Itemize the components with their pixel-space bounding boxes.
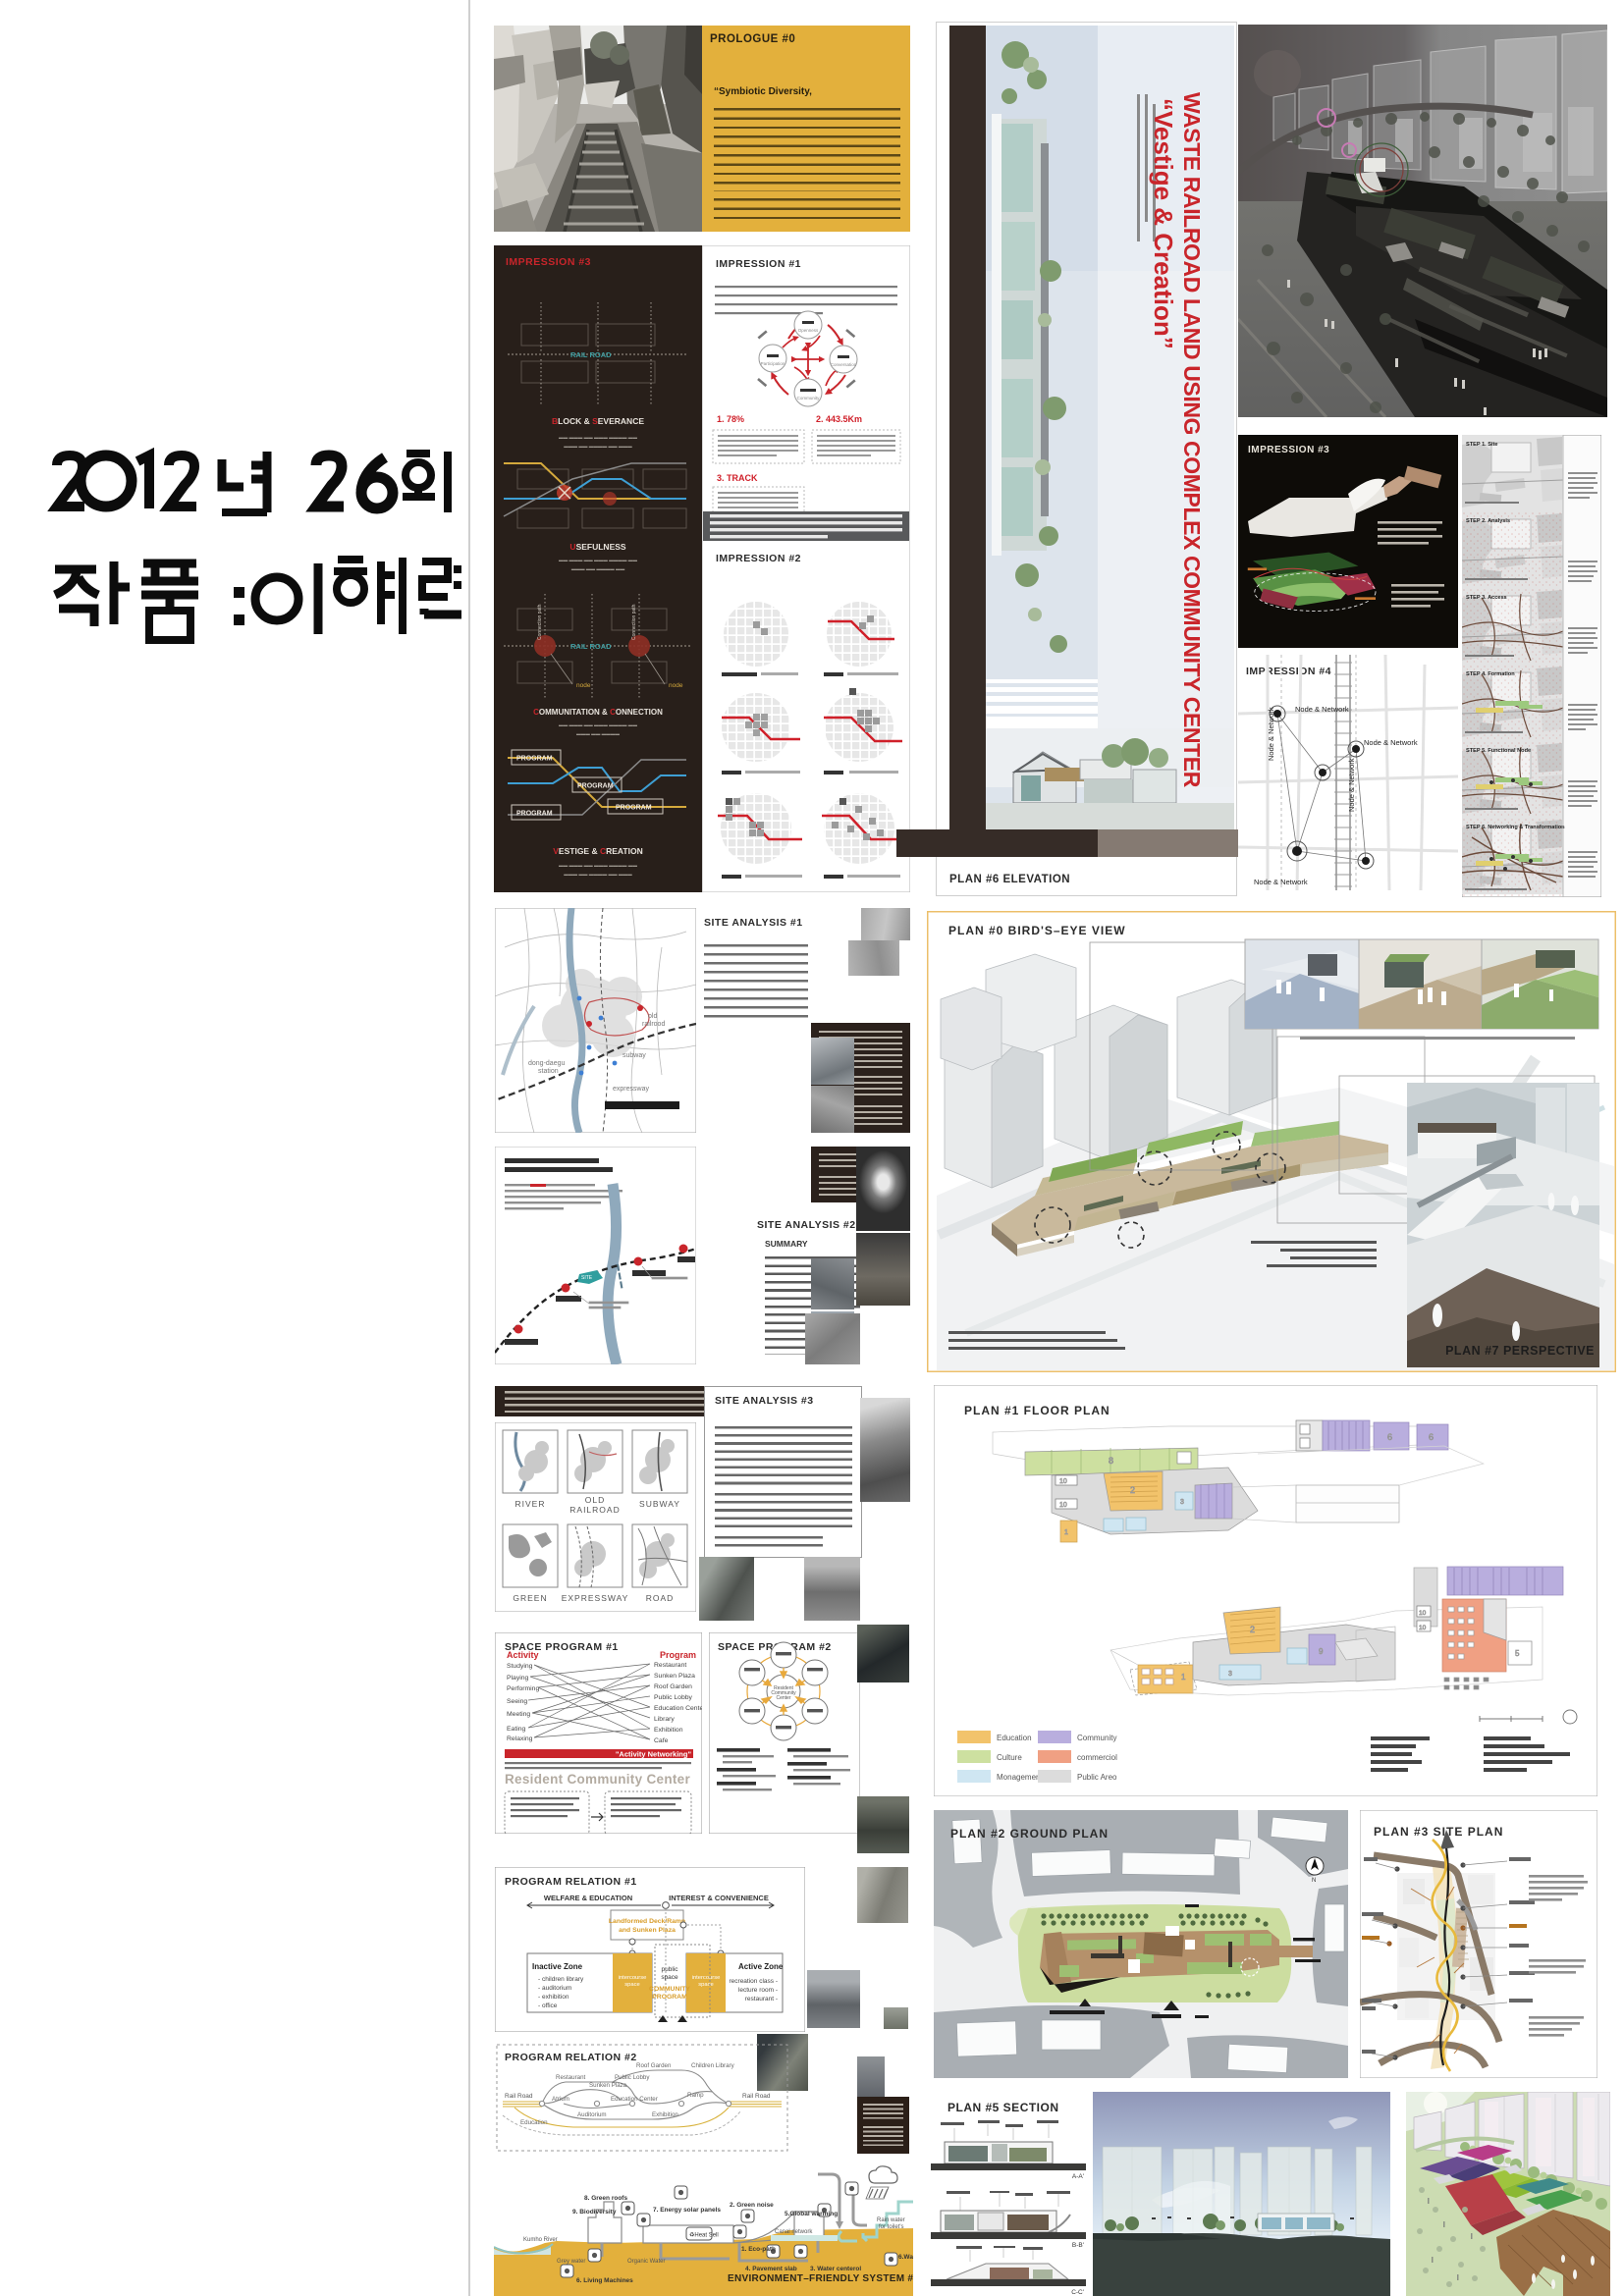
svg-text:space: space [698,1982,713,1988]
svg-text:6: 6 [1387,1432,1392,1442]
svg-text:old: old [648,1013,657,1020]
svg-text:expressway: expressway [613,1086,649,1093]
svg-text:9. Biodiversity: 9. Biodiversity [572,2209,617,2216]
svg-text:PROGRAM: PROGRAM [616,805,652,812]
svg-text:2: 2 [1130,1485,1135,1495]
svg-text:recreation class -: recreation class - [730,1978,779,1985]
svg-text:6: 6 [1429,1432,1434,1442]
svg-text:- auditorium: - auditorium [538,1985,571,1992]
svg-text:Education: Education [997,1734,1032,1742]
svg-text:PLAN #1 FLOOR PLAN: PLAN #1 FLOOR PLAN [964,1404,1110,1417]
svg-text:intercourse: intercourse [692,1975,721,1981]
svg-text:Playing: Playing [507,1675,529,1682]
svg-text:railrood: railrood [642,1021,665,1028]
svg-text:Activity: Activity [507,1650,539,1660]
svg-text:commerciol: commerciol [1077,1753,1117,1762]
svg-text:Connection path: Connection path [631,604,637,640]
svg-text:IMPRESSION #4: IMPRESSION #4 [1246,666,1331,677]
svg-text:Landformed Deck/Ramp: Landformed Deck/Ramp [609,1918,685,1925]
svg-text:1: 1 [1181,1673,1186,1682]
svg-text:PROGRAM RELATION #2: PROGRAM RELATION #2 [505,2052,637,2063]
svg-text:3. TRACK: 3. TRACK [717,473,758,483]
svg-text:RAIL ROAD: RAIL ROAD [570,642,612,651]
svg-text:OLD: OLD [585,1495,605,1505]
svg-text:10: 10 [1419,1625,1427,1631]
svg-text:7. Energy solar panels: 7. Energy solar panels [653,2207,721,2214]
svg-text:Node & Network: Node & Network [1347,758,1356,812]
svg-text:STEP 3. Access: STEP 3. Access [1466,595,1507,601]
svg-text:Studying: Studying [507,1663,533,1670]
svg-text:Restaurant: Restaurant [556,2074,586,2081]
svg-text:dong-daegu: dong-daegu [528,1060,565,1067]
svg-text:▬▬▬ ▬▬ ▬▬▬▬ ▬▬: ▬▬▬ ▬▬ ▬▬▬▬ ▬▬ [571,566,625,571]
svg-text:Rain water: Rain water [877,2217,905,2223]
svg-text:WELFARE & EDUCATION: WELFARE & EDUCATION [544,1894,632,1902]
svg-text:4. Pavement slab: 4. Pavement slab [745,2266,797,2272]
svg-text:Connection path: Connection path [537,604,543,640]
svg-text:Community: Community [1077,1734,1116,1742]
svg-text:PLAN #0 BIRD'S–EYE VIEW: PLAN #0 BIRD'S–EYE VIEW [948,924,1126,937]
svg-text:1. Eco-path: 1. Eco-path [741,2246,776,2253]
svg-text:restaurant -: restaurant - [745,1996,778,2002]
svg-text:"Activity Networking": "Activity Networking" [616,1750,692,1759]
svg-text:SITE: SITE [581,1275,593,1281]
svg-text:6.Water: 6.Water [898,2254,913,2261]
svg-text:▬▬▬ ▬▬ ▬▬▬▬ ▬▬ ▬▬▬: ▬▬▬ ▬▬ ▬▬▬▬ ▬▬ ▬▬▬ [564,444,632,449]
svg-text:Monagement: Monagement [997,1773,1043,1782]
svg-text:and Sunken Plaza: and Sunken Plaza [619,1927,676,1934]
svg-text:Cafe: Cafe [654,1737,669,1744]
svg-text:♻Heat Sell: ♻Heat Sell [689,2232,719,2239]
svg-text:Sunken Plaza: Sunken Plaza [654,1673,695,1680]
svg-text:1: 1 [1064,1529,1068,1536]
svg-text:▬▬ ▬▬▬ ▬▬ ▬▬▬ ▬▬▬▬ ▬▬: ▬▬ ▬▬▬ ▬▬ ▬▬▬ ▬▬▬▬ ▬▬ [559,558,637,562]
svg-text:node: node [576,682,591,689]
svg-text:Organic Water: Organic Water [627,2259,665,2265]
svg-text:N: N [1312,1878,1316,1884]
svg-text:IMPRESSION #2: IMPRESSION #2 [716,553,801,564]
svg-text:Node & Network: Node & Network [1267,707,1275,761]
svg-text:GREEN: GREEN [513,1593,547,1603]
svg-text:2. Green noise: 2. Green noise [730,2202,774,2209]
svg-text:public: public [662,1966,679,1973]
svg-text:PLAN #2 GROUND PLAN: PLAN #2 GROUND PLAN [950,1827,1109,1841]
svg-text:3: 3 [1228,1671,1232,1678]
svg-text:5: 5 [1515,1649,1520,1658]
svg-text:RAILROAD: RAILROAD [569,1505,620,1515]
svg-text:5.Global warming: 5.Global warming [785,2211,838,2217]
svg-text:▬▬▬ ▬▬ ▬▬▬▬: ▬▬▬ ▬▬ ▬▬▬▬ [576,731,620,736]
svg-text:6. Living Machines: 6. Living Machines [576,2277,633,2284]
svg-text:STEP 1. Site: STEP 1. Site [1466,442,1498,448]
svg-text:Canal network: Canal network [775,2229,813,2235]
svg-text:BLOCK & SEVERANCE: BLOCK & SEVERANCE [552,416,644,426]
svg-text:8: 8 [1109,1456,1113,1466]
svg-text:Center: Center [776,1695,790,1701]
svg-text:Openness: Openness [798,328,819,333]
svg-text:Performing: Performing [507,1685,539,1692]
svg-text:Auditorium: Auditorium [577,2111,607,2118]
svg-text:Education: Education [520,2119,548,2126]
svg-text:space: space [661,1974,678,1981]
svg-text:Rail Road: Rail Road [505,2093,533,2100]
svg-text:8. Green roofs: 8. Green roofs [584,2195,627,2202]
svg-text:RIVER: RIVER [515,1499,546,1509]
svg-text:- office: - office [538,2002,558,2009]
svg-text:Node & Network: Node & Network [1364,738,1418,747]
svg-text:PROGRAM RELATION #1: PROGRAM RELATION #1 [505,1876,637,1888]
svg-text:2. 443.5Km: 2. 443.5Km [816,414,862,424]
svg-text:Culture: Culture [997,1753,1022,1762]
svg-text:COMMUNITATION & CONNECTION: COMMUNITATION & CONNECTION [533,708,663,717]
svg-text:Resident Community Center: Resident Community Center [505,1772,690,1787]
svg-text:COMMUNITY: COMMUNITY [649,1986,690,1993]
svg-text:- children library: - children library [538,1976,584,1983]
svg-text:Meeting: Meeting [507,1711,530,1718]
svg-text:Program: Program [660,1650,696,1660]
svg-text:3. Water centerol: 3. Water centerol [810,2266,861,2272]
svg-text:EXPRESSWAY: EXPRESSWAY [562,1593,629,1603]
svg-text:▬▬▬ ▬▬ ▬▬▬▬ ▬▬ ▬▬▬: ▬▬▬ ▬▬ ▬▬▬▬ ▬▬ ▬▬▬ [564,872,632,877]
svg-text:IMPRESSION #1: IMPRESSION #1 [716,258,801,270]
svg-text:9: 9 [1319,1647,1324,1656]
svg-text:ROAD: ROAD [646,1593,675,1603]
svg-text:Public Lobby: Public Lobby [654,1694,693,1701]
svg-text:for toilet's: for toilet's [879,2224,904,2230]
svg-text:Node & Network: Node & Network [1295,705,1349,714]
svg-text:PLAN #3 SITE PLAN: PLAN #3 SITE PLAN [1374,1825,1503,1839]
svg-text:Active Zone: Active Zone [738,1962,784,1971]
svg-text:VESTIGE & CREATION: VESTIGE & CREATION [553,846,642,856]
svg-text:Rail Road: Rail Road [742,2093,771,2100]
svg-text:space: space [624,1982,639,1988]
svg-text:Public Areo: Public Areo [1077,1773,1117,1782]
svg-text:10: 10 [1419,1610,1427,1617]
svg-text:Restaurant: Restaurant [654,1662,686,1669]
svg-text:Kumho River: Kumho River [523,2237,558,2243]
svg-text:Conversation: Conversation [831,362,857,367]
svg-text:Sunken Plaza: Sunken Plaza [589,2082,627,2089]
svg-text:Grey water: Grey water [557,2259,585,2265]
svg-text:Library: Library [654,1716,675,1723]
svg-text:station: station [538,1068,559,1075]
svg-text:PROGRAM: PROGRAM [516,811,553,818]
svg-text:▬▬ ▬▬▬ ▬▬ ▬▬▬ ▬▬▬▬ ▬▬: ▬▬ ▬▬▬ ▬▬ ▬▬▬ ▬▬▬▬ ▬▬ [559,863,637,868]
svg-text:Education Center: Education Center [654,1705,702,1712]
svg-text:1. 78%: 1. 78% [717,414,744,424]
svg-text:IMPRESSION #3: IMPRESSION #3 [506,256,591,268]
svg-text:RAIL ROAD: RAIL ROAD [570,350,612,359]
svg-text:A-A': A-A' [1072,2173,1084,2179]
svg-text:STEP 5. Functional Node: STEP 5. Functional Node [1466,748,1531,754]
svg-text:Exhibition: Exhibition [654,1727,683,1734]
svg-text:subway: subway [623,1052,646,1059]
svg-text:- exhibition: - exhibition [538,1994,569,2001]
svg-text:INTEREST & CONVENIENCE: INTEREST & CONVENIENCE [669,1894,769,1902]
svg-text:STEP 2. Analysis: STEP 2. Analysis [1466,518,1510,524]
svg-text:SUBWAY: SUBWAY [639,1499,680,1509]
svg-text:2: 2 [1250,1625,1255,1634]
svg-text:Roof Garden: Roof Garden [654,1683,692,1690]
svg-text:Seeing: Seeing [507,1698,527,1705]
svg-text:PROGRAM: PROGRAM [577,783,614,790]
svg-text:3: 3 [1180,1499,1184,1506]
svg-text:Community: Community [797,396,821,400]
svg-text:Children Library: Children Library [691,2062,735,2069]
svg-text:Education Center: Education Center [611,2096,658,2103]
svg-text:ENVIRONMENT–FRIENDLY SYSTEM #0: ENVIRONMENT–FRIENDLY SYSTEM #0 [728,2273,913,2284]
svg-text:▬▬ ▬▬▬ ▬▬ ▬▬▬ ▬▬▬▬ ▬▬: ▬▬ ▬▬▬ ▬▬ ▬▬▬ ▬▬▬▬ ▬▬ [559,722,637,727]
svg-text:10: 10 [1059,1478,1067,1485]
svg-text:STEP 4. Formation: STEP 4. Formation [1466,671,1515,677]
svg-text:Node & Network: Node & Network [1254,878,1308,886]
svg-text:node: node [669,682,683,689]
svg-text:C-C': C-C' [1071,2289,1084,2295]
svg-text:Inactive Zone: Inactive Zone [532,1962,583,1971]
svg-text:Public Lobby: Public Lobby [615,2074,650,2081]
svg-text:Participation: Participation [761,361,785,366]
svg-text:PROGRAM: PROGRAM [652,1994,687,2001]
svg-text:Relaxing: Relaxing [507,1735,533,1742]
svg-text:Exhibition: Exhibition [652,2111,678,2118]
svg-text:lecture room -: lecture room - [738,1987,778,1994]
svg-text:STEP 6. Networking & Transform: STEP 6. Networking & Transformation [1466,825,1565,830]
svg-text:Eating: Eating [507,1726,525,1733]
svg-text:▬▬ ▬▬▬ ▬▬ ▬▬▬ ▬▬▬▬ ▬▬: ▬▬ ▬▬▬ ▬▬ ▬▬▬ ▬▬▬▬ ▬▬ [559,435,637,440]
svg-text:IMPRESSION #3: IMPRESSION #3 [1248,445,1329,455]
svg-text:intercourse: intercourse [619,1975,647,1981]
svg-text:10: 10 [1059,1502,1067,1509]
svg-text:PLAN #7 PERSPECTIVE: PLAN #7 PERSPECTIVE [1445,1344,1595,1358]
svg-text:PROGRAM: PROGRAM [516,756,553,763]
svg-text:Ramp: Ramp [687,2092,704,2099]
svg-text:USEFULNESS: USEFULNESS [569,542,625,552]
svg-text:Roof Garden: Roof Garden [636,2062,672,2069]
svg-text:Atrium: Atrium [552,2096,569,2103]
